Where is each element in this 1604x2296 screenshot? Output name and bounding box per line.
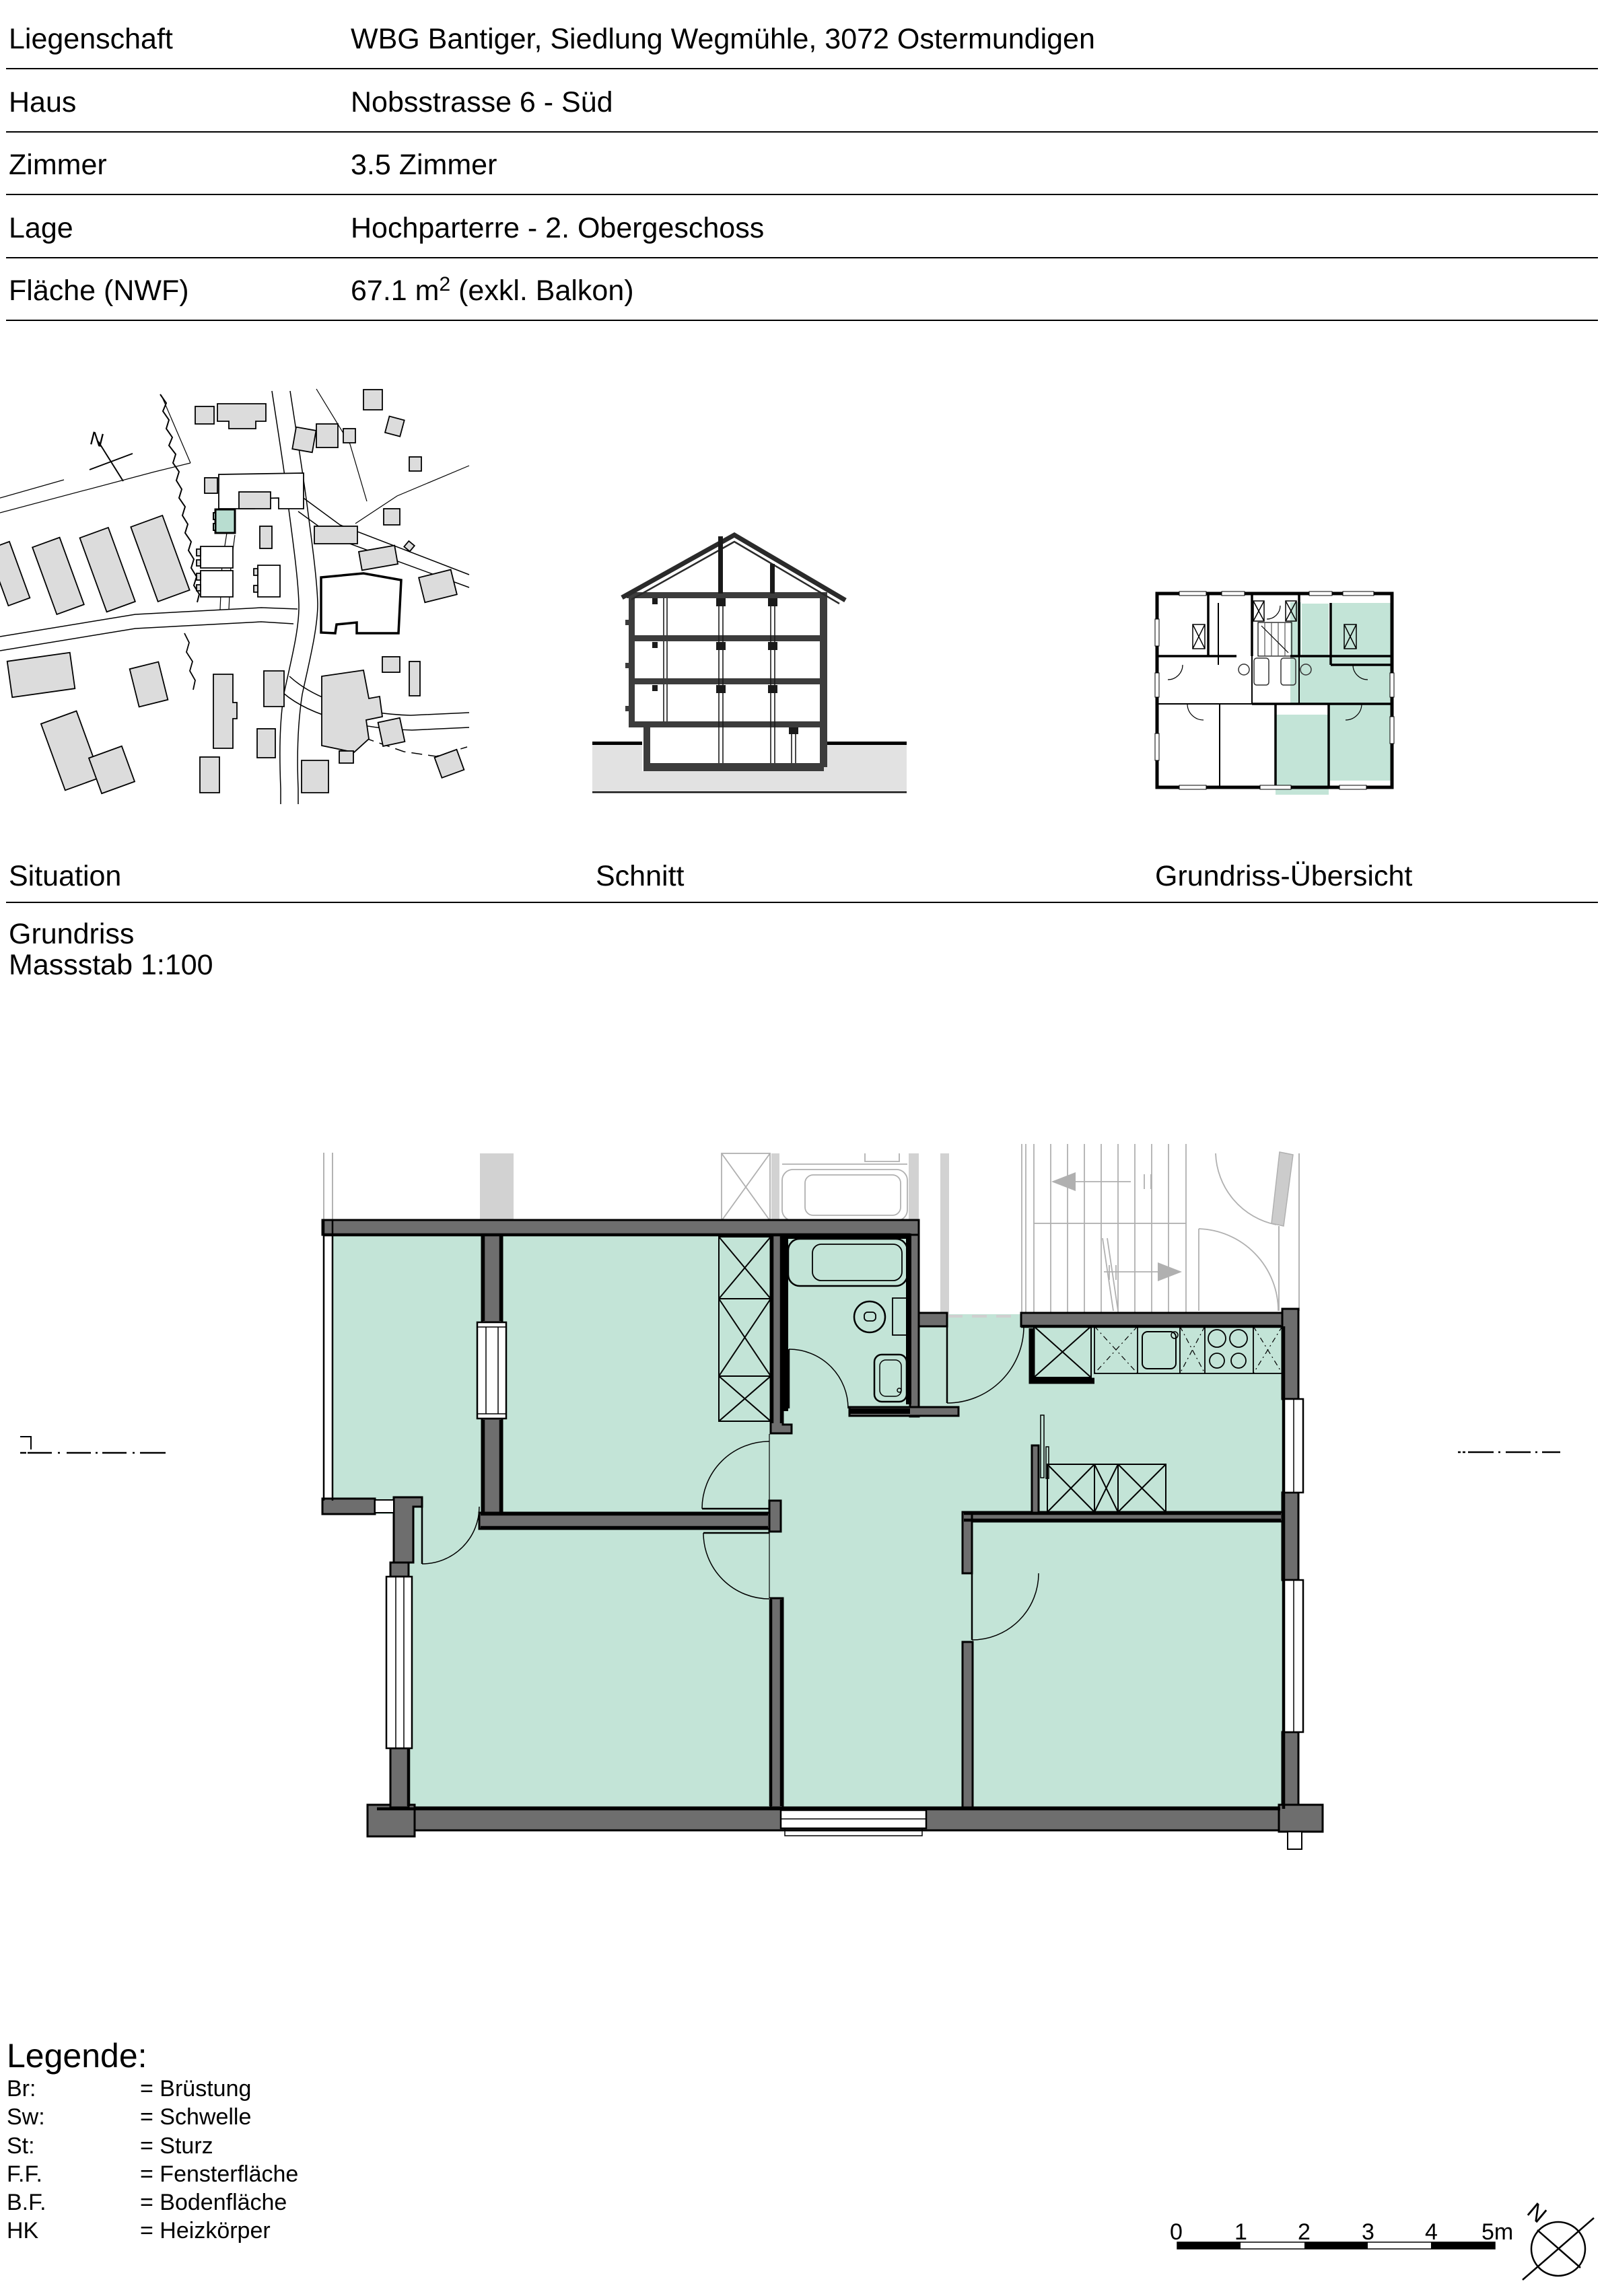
svg-text:0: 0 — [1170, 2219, 1183, 2245]
svg-text:= Brüstung: = Brüstung — [140, 2076, 251, 2102]
svg-text:= Fensterfläche: = Fensterfläche — [140, 2161, 298, 2187]
svg-text:Situation: Situation — [9, 860, 121, 892]
svg-text:Lage: Lage — [9, 212, 73, 244]
svg-text:Grundriss: Grundriss — [9, 918, 134, 950]
svg-text:Hochparterre - 2. Obergeschoss: Hochparterre - 2. Obergeschoss — [351, 212, 764, 244]
svg-text:3: 3 — [1362, 2219, 1374, 2245]
svg-text:4: 4 — [1425, 2219, 1438, 2245]
svg-text:Zimmer: Zimmer — [9, 149, 107, 181]
svg-text:1: 1 — [1234, 2219, 1247, 2245]
svg-text:= Bodenfläche: = Bodenfläche — [140, 2190, 287, 2215]
svg-text:Legende:: Legende: — [7, 2037, 147, 2075]
svg-text:Schnitt: Schnitt — [596, 860, 685, 892]
svg-text:St:: St: — [7, 2133, 35, 2159]
svg-text:67.1 m2 (exkl. Balkon): 67.1 m2 (exkl. Balkon) — [351, 273, 634, 307]
svg-text:Liegenschaft: Liegenschaft — [9, 23, 173, 55]
svg-text:= Heizkörper: = Heizkörper — [140, 2218, 271, 2244]
svg-text:Nobsstrasse 6 - Süd: Nobsstrasse 6 - Süd — [351, 86, 613, 118]
svg-text:F.F.: F.F. — [7, 2161, 42, 2187]
svg-text:= Sturz: = Sturz — [140, 2133, 213, 2159]
svg-text:5m: 5m — [1481, 2219, 1513, 2245]
svg-text:N: N — [88, 427, 106, 451]
svg-text:WBG Bantiger, Siedlung Wegmühl: WBG Bantiger, Siedlung Wegmühle, 3072 Os… — [351, 23, 1095, 55]
svg-text:B.F.: B.F. — [7, 2190, 46, 2215]
svg-text:HK: HK — [7, 2218, 39, 2244]
svg-text:Br:: Br: — [7, 2076, 36, 2102]
svg-text:Massstab 1:100: Massstab 1:100 — [9, 949, 213, 981]
svg-text:Haus: Haus — [9, 86, 76, 118]
svg-text:= Schwelle: = Schwelle — [140, 2104, 251, 2130]
svg-text:3.5 Zimmer: 3.5 Zimmer — [351, 149, 497, 181]
svg-text:Grundriss-Übersicht: Grundriss-Übersicht — [1155, 860, 1412, 892]
svg-text:Fläche (NWF): Fläche (NWF) — [9, 275, 189, 307]
svg-text:Sw:: Sw: — [7, 2104, 45, 2130]
svg-text:2: 2 — [1298, 2219, 1311, 2245]
